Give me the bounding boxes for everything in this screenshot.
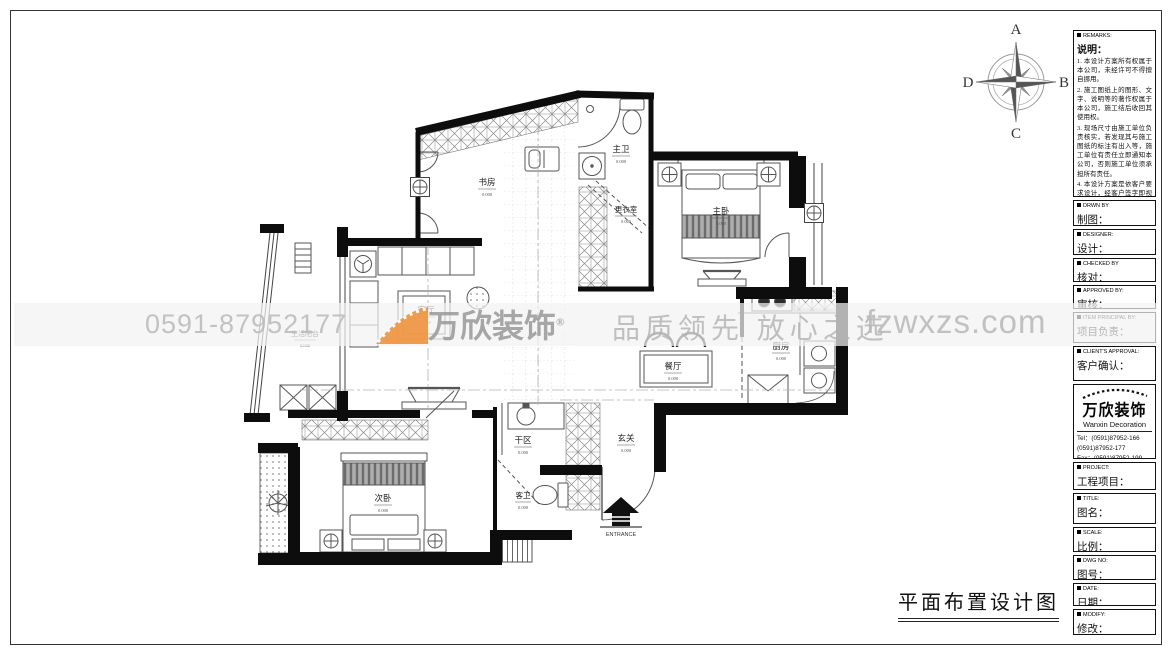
master-nightstand-right (757, 163, 780, 186)
svg-text:0.000: 0.000 (668, 376, 679, 381)
towel-radiator (502, 537, 532, 562)
bullet-square-icon (1077, 33, 1081, 37)
living-coffee-table (398, 291, 450, 339)
logo-arc-icon (1080, 388, 1150, 399)
company-fax: Fax：(0591)87952-199 (1077, 454, 1152, 460)
svg-text:0.000: 0.000 (421, 320, 432, 325)
room-label-dining: 餐厅 (664, 361, 682, 371)
living-ac-unit (350, 251, 376, 277)
company-box: 万欣装饰 Wanxin Decoration Tel：(0591)87952-1… (1073, 384, 1156, 459)
balcony-cabinet (295, 243, 311, 273)
remark-item: 3. 现场尺寸由施工单位负责核实，若发现其与施工图纸的标注有出入等，施工单位有责… (1077, 124, 1152, 179)
field-title: TITLE: 图名： (1073, 493, 1156, 524)
title-block: REMARKS: 说明： 1. 本设计方案所有权属于本公司，未经许可不得擅自挪用… (1073, 30, 1156, 635)
svg-text:0.000: 0.000 (518, 450, 529, 455)
field-modify: MODIFY: 修改： (1073, 609, 1156, 635)
room-label-kitchen: 厨房 (772, 341, 789, 351)
room-label-dry-area: 干区 (514, 435, 532, 445)
remarks-header: REMARKS: (1077, 33, 1152, 40)
field-client-approval: CLIENT'S APPROVAL: 客户确认： (1073, 346, 1156, 381)
field-drwn-by: DRWN BY 制图： (1073, 200, 1156, 226)
svg-text:0.000: 0.000 (716, 221, 727, 226)
svg-text:0.000: 0.000 (378, 508, 389, 513)
compass-star (976, 42, 1056, 122)
remark-item: 4. 本设计方案是依客户要求设计，经客户签字即视为同意认可，不得随意更改。 (1077, 180, 1152, 197)
compass-letter-c: C (1011, 126, 1021, 142)
room-label-balcony: 生活阳台 (291, 329, 319, 338)
study-bed (525, 147, 559, 171)
svg-text:0.000: 0.000 (621, 448, 632, 453)
company-tel2: (0591)87952-177 (1077, 444, 1152, 454)
field-designer: DESIGNER: 设计： (1073, 229, 1156, 255)
remark-item: 2. 施工图纸上的图形、文字、说明等的著作权属于本公司，施工结后收回其使用权。 (1077, 86, 1152, 123)
company-logo-text: 万欣装饰 (1077, 398, 1152, 420)
field-approved-by: APPROVED BY: 审核： (1073, 285, 1156, 309)
entrance-arrow: ENTRANCE (600, 497, 642, 538)
field-dwg-no: DWG NO: 图号： (1073, 555, 1156, 580)
company-tel1: Tel：(0591)87952-166 (1077, 434, 1152, 444)
svg-text:0.000: 0.000 (776, 356, 787, 361)
svg-text:0.000: 0.000 (621, 219, 632, 224)
dry-area-basin (508, 403, 564, 429)
floor-plan: ENTRANCE 书房 0.000 主卫 0.000 更衣室 0.000 主卧 … (240, 75, 870, 580)
remark-item: 1. 本设计方案所有权属于本公司，未经许可不得擅自挪用。 (1077, 57, 1152, 85)
compass-rose: A B C D (960, 20, 1076, 142)
remarks-box: REMARKS: 说明： 1. 本设计方案所有权属于本公司，未经许可不得擅自挪用… (1073, 30, 1156, 197)
svg-text:0.000: 0.000 (518, 505, 529, 510)
title-underline (898, 618, 1059, 619)
master-bath-fixtures (578, 99, 644, 179)
master-tv (698, 271, 746, 286)
svg-text:0.000: 0.000 (616, 159, 627, 164)
room-label-living: 客厅 (417, 305, 435, 315)
company-name-en: Wanxin Decoration (1077, 420, 1152, 432)
room-label-guest-bath: 客卫 (516, 490, 531, 500)
washing-machines (280, 385, 336, 410)
room-label-second-bedroom: 次卧 (374, 493, 392, 503)
svg-text:0.000: 0.000 (300, 343, 311, 348)
title-underline (898, 621, 1059, 622)
field-checked-by: CHECKED BY 核对： (1073, 258, 1156, 282)
room-label-study: 书房 (478, 177, 495, 187)
compass-letter-b: B (1059, 75, 1069, 91)
master-nightstand-left (658, 163, 681, 186)
entrance-label: ENTRANCE (606, 532, 637, 538)
compass-letter-d: D (963, 75, 974, 91)
drawing-title: 平面布置设计图 (898, 586, 1059, 622)
second-nightstand-right (424, 530, 446, 552)
room-label-closet: 更衣室 (615, 204, 638, 214)
field-item-principal: ITEM PRINCIPAL BY: 项目负责： (1073, 312, 1156, 343)
room-label-foyer: 玄关 (617, 433, 635, 443)
field-project: PROJECT: 工程项目： (1073, 462, 1156, 490)
field-scale: SCALE: 比例： (1073, 527, 1156, 552)
living-plant (467, 287, 489, 309)
svg-text:0.000: 0.000 (482, 192, 493, 197)
room-label-master-bedroom: 主卧 (712, 206, 730, 216)
drawing-title-text: 平面布置设计图 (898, 586, 1059, 615)
remarks-title: 说明： (1077, 41, 1152, 56)
room-label-master-bath: 主卫 (612, 144, 630, 154)
living-tv (402, 388, 466, 409)
drawing-sheet: ENTRANCE 书房 0.000 主卫 0.000 更衣室 0.000 主卧 … (0, 0, 1171, 654)
compass-letter-a: A (1011, 22, 1022, 38)
second-nightstand-left (320, 530, 342, 552)
field-date: DATE: 日期： (1073, 583, 1156, 606)
